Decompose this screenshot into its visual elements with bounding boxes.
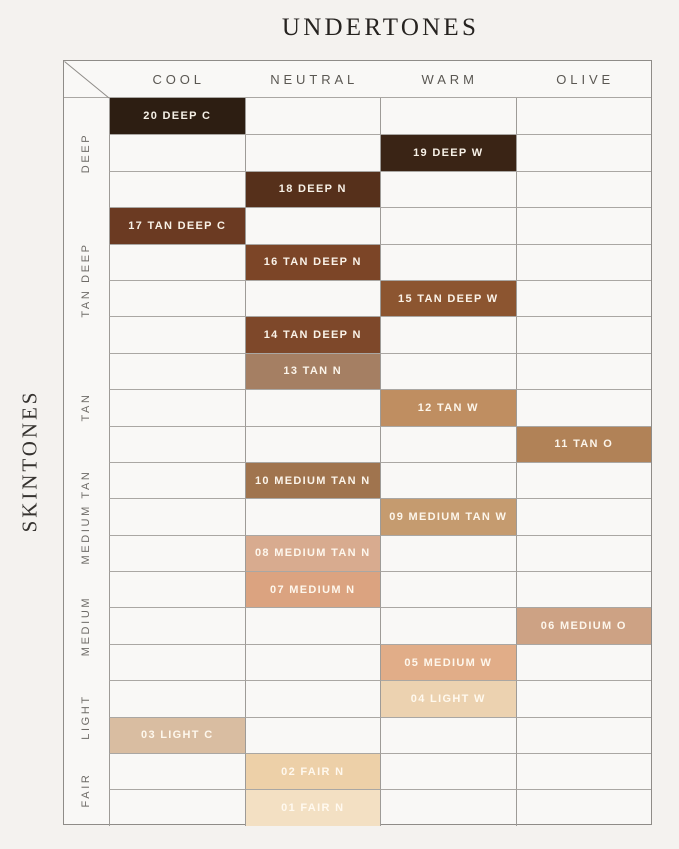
empty-grid-cell (516, 571, 652, 607)
shade-label: 01 FAIR N (281, 802, 344, 814)
shade-label: 16 TAN DEEP N (264, 256, 362, 268)
empty-grid-cell (380, 426, 516, 462)
empty-grid-cell (245, 207, 381, 243)
empty-grid-cell (245, 280, 381, 316)
shade-label: 09 MEDIUM TAN W (389, 511, 507, 523)
undertone-header-row: COOLNEUTRALWARMOLIVE (64, 61, 651, 98)
shade-swatch: 09 MEDIUM TAN W (381, 499, 516, 534)
row-group-label-fair: FAIR (80, 772, 92, 807)
empty-grid-cell (109, 753, 245, 789)
empty-grid-cell (380, 171, 516, 207)
shade-label: 05 MEDIUM W (404, 657, 492, 669)
empty-grid-cell (380, 207, 516, 243)
shade-label: 17 TAN DEEP C (128, 220, 226, 232)
empty-grid-cell (380, 316, 516, 352)
empty-grid-cell (109, 280, 245, 316)
empty-grid-cell (109, 244, 245, 280)
empty-grid-cell (380, 789, 516, 825)
shade-cell-15-tan-deep-w: 15 TAN DEEP W (380, 280, 516, 316)
empty-grid-cell (109, 498, 245, 534)
shade-cell-04-light-w: 04 LIGHT W (380, 680, 516, 716)
shade-cell-10-medium-tan-n: 10 MEDIUM TAN N (245, 462, 381, 498)
shade-cell-01-fair-n: 01 FAIR N (245, 789, 381, 825)
shade-swatch: 17 TAN DEEP C (110, 208, 245, 243)
shade-swatch: 07 MEDIUM N (246, 572, 381, 607)
empty-grid-cell (109, 171, 245, 207)
empty-grid-cell (245, 607, 381, 643)
shade-swatch: 01 FAIR N (246, 790, 381, 825)
shade-chart-table: COOLNEUTRALWARMOLIVE DEEPTAN DEEPTANMEDI… (63, 60, 652, 825)
shade-swatch: 16 TAN DEEP N (246, 245, 381, 280)
shade-cell-16-tan-deep-n: 16 TAN DEEP N (245, 244, 381, 280)
empty-grid-cell (109, 535, 245, 571)
column-header-cool: COOL (109, 61, 245, 97)
empty-grid-cell (245, 426, 381, 462)
empty-grid-cell (245, 134, 381, 170)
shade-swatch: 13 TAN N (246, 354, 381, 389)
column-header-warm: WARM (380, 61, 516, 97)
empty-grid-cell (516, 244, 652, 280)
empty-grid-cell (109, 316, 245, 352)
shade-cell-14-tan-deep-n: 14 TAN DEEP N (245, 316, 381, 352)
empty-grid-cell (109, 353, 245, 389)
row-group-label-medium-tan: MEDIUM TAN (80, 469, 92, 564)
shade-cell-20-deep-c: 20 DEEP C (109, 98, 245, 134)
shade-label: 10 MEDIUM TAN N (255, 475, 371, 487)
shade-cell-07-medium-n: 07 MEDIUM N (245, 571, 381, 607)
shade-label: 04 LIGHT W (411, 693, 486, 705)
shade-label: 15 TAN DEEP W (398, 293, 499, 305)
shade-cell-19-deep-w: 19 DEEP W (380, 134, 516, 170)
row-group-label-tan: TAN (80, 393, 92, 422)
empty-grid-cell (380, 535, 516, 571)
shade-swatch: 10 MEDIUM TAN N (246, 463, 381, 498)
empty-grid-cell (380, 98, 516, 134)
shade-label: 14 TAN DEEP N (264, 329, 362, 341)
empty-grid-cell (516, 644, 652, 680)
empty-grid-cell (245, 680, 381, 716)
shade-swatch: 18 DEEP N (246, 172, 381, 207)
empty-grid-cell (516, 789, 652, 825)
shade-cell-06-medium-o: 06 MEDIUM O (516, 607, 652, 643)
shade-cell-11-tan-o: 11 TAN O (516, 426, 652, 462)
shade-swatch: 03 LIGHT C (110, 718, 245, 753)
empty-grid-cell (516, 462, 652, 498)
shade-cell-02-fair-n: 02 FAIR N (245, 753, 381, 789)
empty-grid-cell (109, 426, 245, 462)
shade-label: 08 MEDIUM TAN N (255, 547, 371, 559)
empty-grid-cell (380, 753, 516, 789)
empty-grid-cell (380, 353, 516, 389)
shade-label: 18 DEEP N (279, 183, 347, 195)
shade-cell-09-medium-tan-w: 09 MEDIUM TAN W (380, 498, 516, 534)
row-group-label-tan-deep: TAN DEEP (80, 242, 92, 317)
empty-grid-cell (516, 98, 652, 134)
empty-grid-cell (380, 244, 516, 280)
shade-label: 12 TAN W (418, 402, 479, 414)
empty-grid-cell (380, 607, 516, 643)
shade-label: 11 TAN O (554, 438, 613, 450)
empty-grid-cell (245, 389, 381, 425)
empty-grid-cell (245, 498, 381, 534)
shade-swatch: 06 MEDIUM O (517, 608, 652, 643)
shade-cell-13-tan-n: 13 TAN N (245, 353, 381, 389)
corner-diagonal (64, 61, 110, 99)
shade-cell-17-tan-deep-c: 17 TAN DEEP C (109, 207, 245, 243)
shade-label: 20 DEEP C (143, 110, 211, 122)
shade-swatch: 20 DEEP C (110, 98, 245, 134)
row-group-label-medium: MEDIUM (80, 596, 92, 656)
row-group-label-deep: DEEP (80, 132, 92, 173)
chart-title: UNDERTONES (108, 14, 653, 42)
shade-swatch: 08 MEDIUM TAN N (246, 536, 381, 571)
y-axis-title: SKINTONES (18, 390, 43, 533)
empty-grid-cell (516, 353, 652, 389)
shade-swatch: 02 FAIR N (246, 754, 381, 789)
shade-label: 19 DEEP W (413, 147, 483, 159)
empty-grid-cell (516, 280, 652, 316)
shade-label: 02 FAIR N (281, 766, 344, 778)
empty-grid-cell (380, 571, 516, 607)
empty-grid-cell (380, 462, 516, 498)
shade-label: 13 TAN N (283, 365, 342, 377)
shade-swatch: 19 DEEP W (381, 135, 516, 170)
shade-label: 07 MEDIUM N (270, 584, 355, 596)
shade-swatch: 14 TAN DEEP N (246, 317, 381, 352)
empty-grid-cell (516, 680, 652, 716)
empty-grid-cell (516, 498, 652, 534)
empty-grid-cell (245, 98, 381, 134)
row-group-label-light: LIGHT (80, 694, 92, 740)
empty-grid-cell (516, 207, 652, 243)
empty-grid-cell (380, 717, 516, 753)
column-header-olive: OLIVE (516, 61, 652, 97)
empty-grid-cell (245, 644, 381, 680)
empty-grid-cell (245, 717, 381, 753)
shade-cell-08-medium-tan-n: 08 MEDIUM TAN N (245, 535, 381, 571)
empty-grid-cell (109, 571, 245, 607)
shade-label: 03 LIGHT C (141, 729, 214, 741)
empty-grid-cell (516, 389, 652, 425)
empty-grid-cell (109, 607, 245, 643)
empty-grid-cell (109, 789, 245, 825)
skintone-label-rail: DEEPTAN DEEPTANMEDIUM TANMEDIUMLIGHTFAIR (64, 98, 109, 826)
shade-cell-03-light-c: 03 LIGHT C (109, 717, 245, 753)
empty-grid-cell (516, 753, 652, 789)
shade-cell-05-medium-w: 05 MEDIUM W (380, 644, 516, 680)
empty-grid-cell (109, 644, 245, 680)
column-header-neutral: NEUTRAL (245, 61, 381, 97)
shade-swatch: 12 TAN W (381, 390, 516, 425)
shade-swatch: 15 TAN DEEP W (381, 281, 516, 316)
empty-grid-cell (516, 134, 652, 170)
empty-grid-cell (516, 316, 652, 352)
empty-grid-cell (516, 717, 652, 753)
shade-swatch: 11 TAN O (517, 427, 652, 462)
shade-label: 06 MEDIUM O (541, 620, 627, 632)
empty-grid-cell (109, 462, 245, 498)
empty-grid-cell (109, 389, 245, 425)
empty-grid-cell (109, 680, 245, 716)
shade-swatch: 04 LIGHT W (381, 681, 516, 716)
shade-cell-18-deep-n: 18 DEEP N (245, 171, 381, 207)
shade-grid: DEEPTAN DEEPTANMEDIUM TANMEDIUMLIGHTFAIR… (64, 98, 651, 826)
shade-cell-12-tan-w: 12 TAN W (380, 389, 516, 425)
empty-grid-cell (109, 134, 245, 170)
empty-grid-cell (516, 171, 652, 207)
shade-swatch: 05 MEDIUM W (381, 645, 516, 680)
empty-grid-cell (516, 535, 652, 571)
